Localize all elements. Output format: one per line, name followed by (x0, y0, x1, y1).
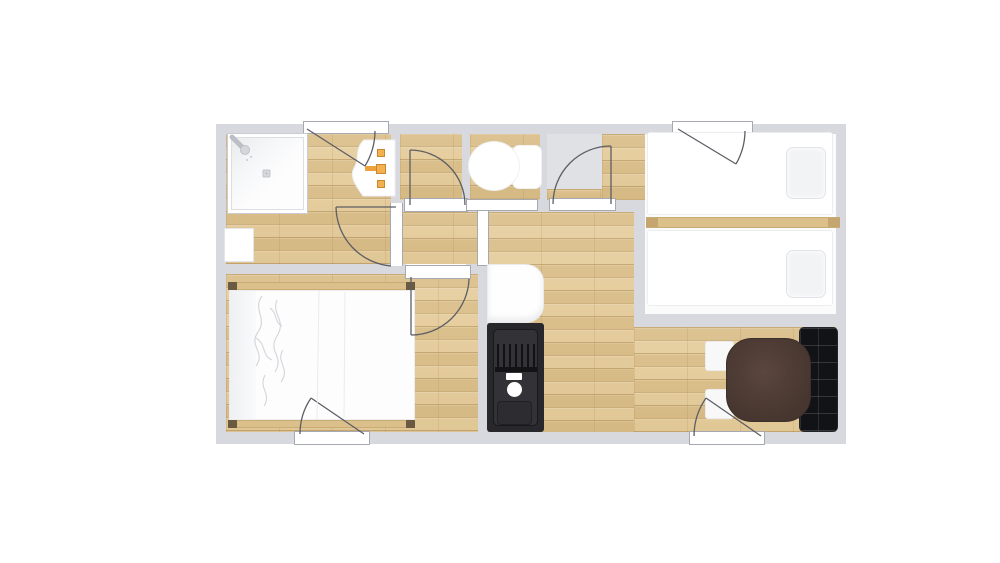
kitchen-drain-circle (507, 382, 522, 397)
mini-hall-floor (400, 212, 478, 264)
double-bed-headboard (228, 282, 415, 290)
washbasin-faucet-knob-mid (376, 164, 386, 174)
twin-bed-2-pillow (786, 250, 826, 298)
bedroom-exterior-door-frame[interactable] (294, 431, 370, 445)
hall-column-floor (602, 134, 646, 200)
wall-wc-vestibule (540, 133, 547, 205)
closet-floor (400, 133, 462, 200)
vestibule-door-frame[interactable] (549, 198, 616, 211)
dining-exterior-door-frame[interactable] (689, 431, 765, 445)
double-bed-footboard-cap-right (406, 420, 415, 428)
wall-twin-south (634, 314, 836, 327)
toilet-bowl[interactable] (469, 142, 519, 190)
closet-door-frame[interactable] (404, 198, 468, 212)
white-appliance[interactable] (487, 264, 544, 323)
dining-table[interactable] (726, 338, 811, 422)
bathroom-storage-box[interactable] (224, 228, 254, 262)
kitchen-lower-basin (497, 401, 532, 425)
hall-cased-opening[interactable] (477, 210, 489, 266)
double-bed-headboard-cap-right (406, 282, 415, 290)
vestibule-floor (547, 134, 602, 189)
double-bed-blanket-fold (230, 291, 256, 419)
twin-bed-1-pillow (786, 147, 826, 199)
wall-left (216, 124, 226, 444)
floor-plan-canvas (0, 0, 1000, 563)
double-bed-headboard-cap-left (228, 282, 237, 290)
kitchen-drying-rack (497, 344, 535, 367)
washbasin-faucet-knob-bottom (377, 180, 385, 188)
double-bed-footboard-cap-left (228, 420, 237, 428)
kitchen-soap-chip (506, 373, 522, 380)
twin-bed-divider-cap-right (828, 218, 840, 227)
double-bed-footboard (228, 420, 415, 428)
washbasin-faucet-knob-top (377, 149, 385, 157)
kitchen-rack-bar (495, 367, 537, 372)
bedroom-door-frame[interactable] (405, 265, 471, 279)
bathroom-door-opening[interactable] (390, 203, 403, 266)
twin-bed-divider (646, 217, 840, 228)
twin-bed-divider-cap-left (646, 218, 658, 227)
entry-door-frame[interactable] (303, 121, 389, 134)
wall-twin-west (634, 210, 645, 320)
shower[interactable] (227, 133, 308, 214)
wall-bathroom-south (226, 264, 406, 274)
double-bed-mattress[interactable] (229, 290, 415, 420)
